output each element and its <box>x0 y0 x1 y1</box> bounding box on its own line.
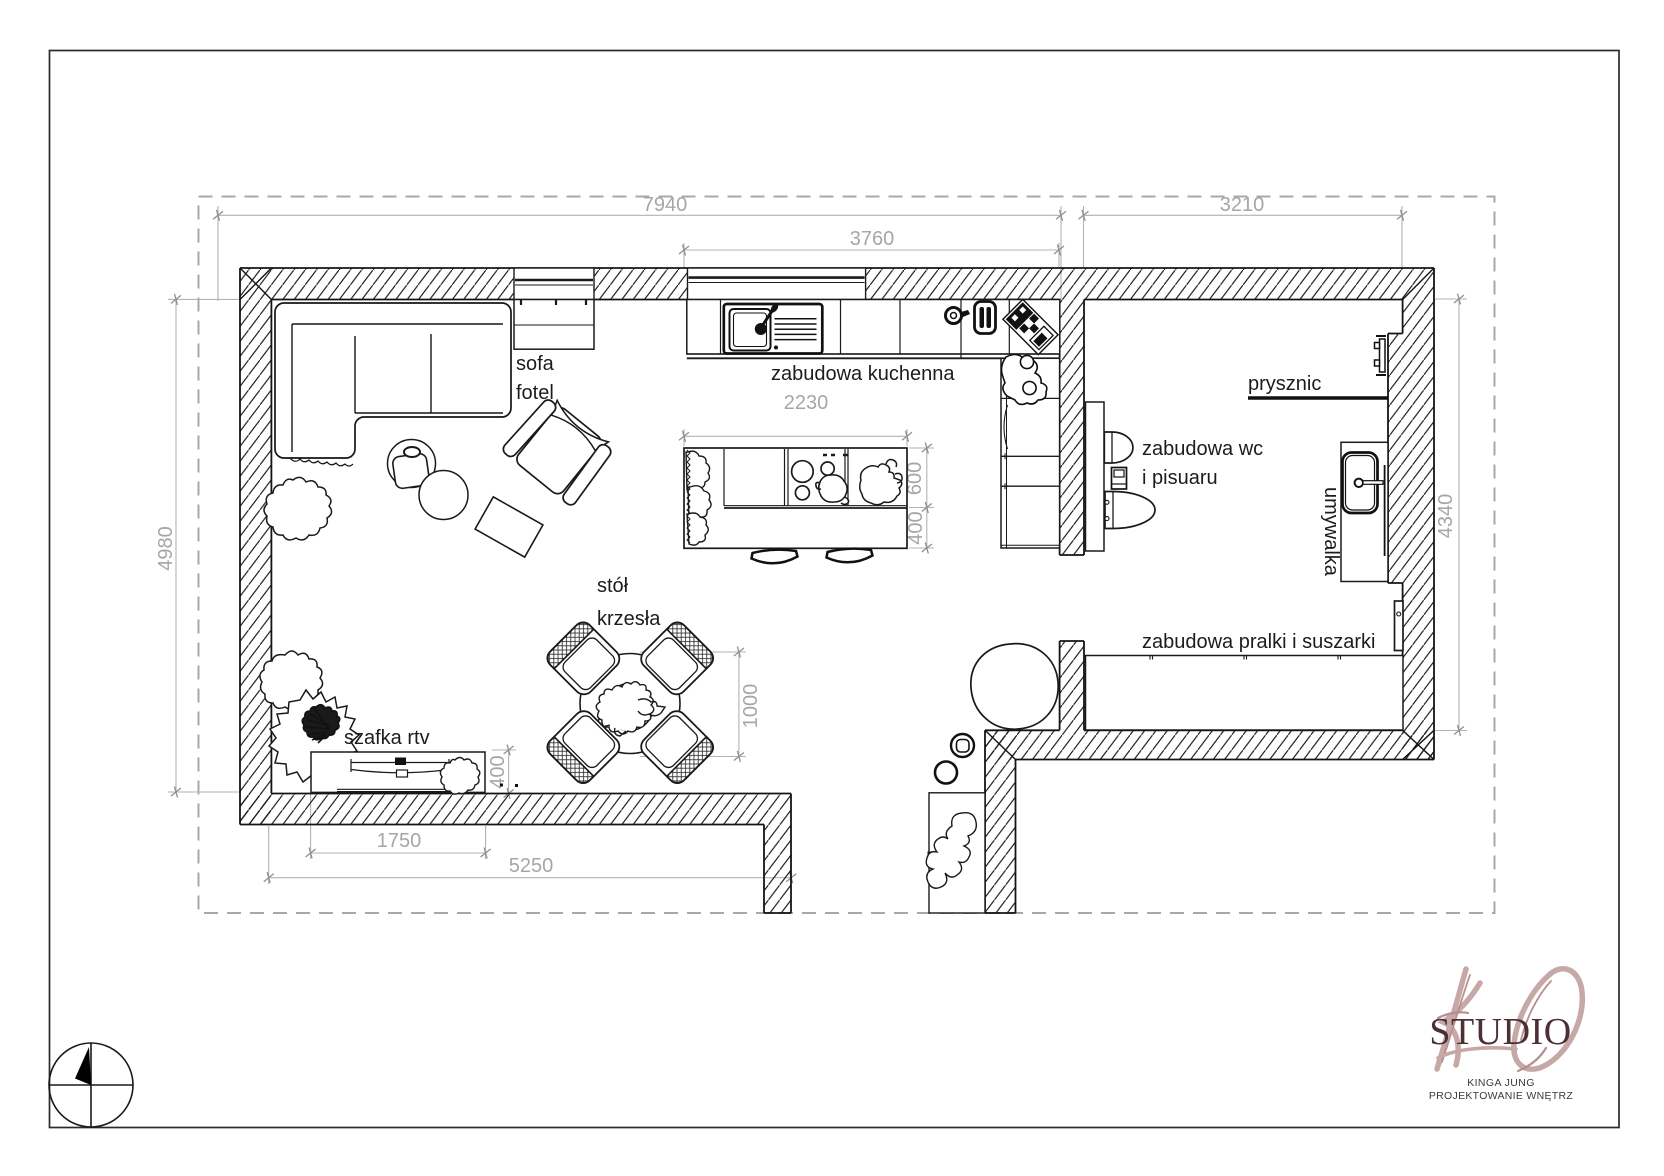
svg-text:400: 400 <box>905 511 927 544</box>
svg-text:sofa: sofa <box>516 353 555 375</box>
svg-text:400: 400 <box>487 755 509 788</box>
svg-text:3210: 3210 <box>1220 194 1265 216</box>
svg-text:PROJEKTOWANIE WNĘTRZ: PROJEKTOWANIE WNĘTRZ <box>1429 1090 1574 1102</box>
svg-text:1750: 1750 <box>377 830 422 852</box>
svg-text:zabudowa wc: zabudowa wc <box>1142 438 1263 460</box>
svg-text:zabudowa kuchenna: zabudowa kuchenna <box>771 363 955 385</box>
svg-text:umywalka: umywalka <box>1320 487 1342 577</box>
svg-text:fotel: fotel <box>516 382 554 404</box>
svg-text:1000: 1000 <box>740 684 762 729</box>
svg-text:KINGA JUNG: KINGA JUNG <box>1467 1077 1535 1089</box>
svg-text:STUDIO: STUDIO <box>1429 1011 1571 1053</box>
svg-text:4980: 4980 <box>155 526 177 571</box>
svg-text:3760: 3760 <box>850 228 895 250</box>
svg-text:2230: 2230 <box>784 392 829 414</box>
svg-text:krzesła: krzesła <box>597 608 661 630</box>
svg-text:7940: 7940 <box>643 194 688 216</box>
svg-text:4340: 4340 <box>1435 494 1457 539</box>
svg-text:prysznic: prysznic <box>1248 373 1321 395</box>
svg-text:5250: 5250 <box>509 855 554 877</box>
svg-text:stół: stół <box>597 575 629 597</box>
svg-text:szafka rtv: szafka rtv <box>344 727 430 749</box>
svg-text:i pisuaru: i pisuaru <box>1142 467 1218 489</box>
svg-text:zabudowa pralki i suszarki: zabudowa pralki i suszarki <box>1142 631 1375 653</box>
